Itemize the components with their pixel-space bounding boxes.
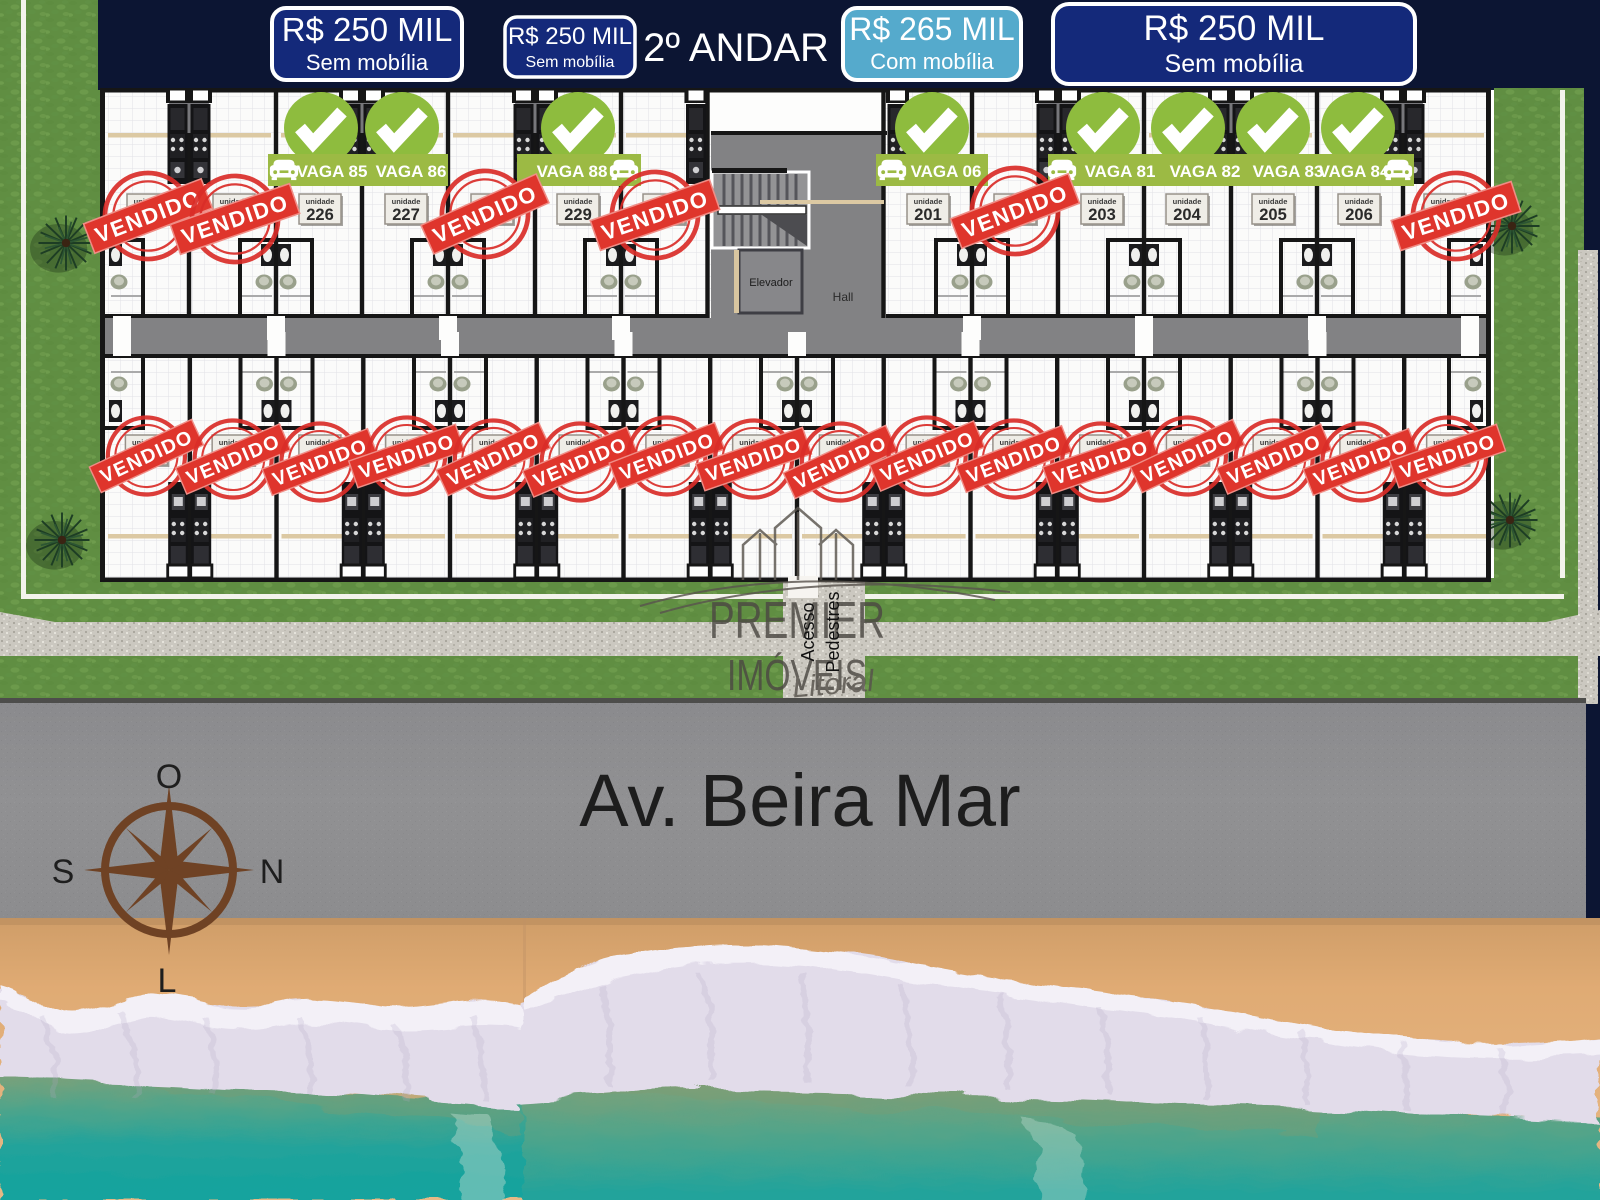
svg-text:VAGA 82: VAGA 82 — [1170, 162, 1241, 181]
svg-text:2º ANDAR: 2º ANDAR — [643, 26, 829, 70]
svg-text:unidade: unidade — [914, 197, 943, 206]
svg-text:Pedestres: Pedestres — [823, 591, 843, 672]
svg-text:VAGA 88: VAGA 88 — [537, 162, 608, 181]
svg-text:unidade: unidade — [564, 197, 593, 206]
svg-text:R$ 265 MIL: R$ 265 MIL — [849, 11, 1014, 47]
svg-text:unidade: unidade — [392, 197, 421, 206]
svg-text:VAGA 81: VAGA 81 — [1085, 162, 1156, 181]
svg-text:VAGA 84: VAGA 84 — [1319, 162, 1390, 181]
svg-text:204: 204 — [1173, 206, 1201, 224]
svg-text:205: 205 — [1259, 206, 1287, 224]
svg-text:227: 227 — [392, 206, 420, 224]
svg-text:R$ 250 MIL: R$ 250 MIL — [508, 23, 632, 50]
svg-text:Sem mobília: Sem mobília — [526, 54, 615, 71]
svg-text:201: 201 — [914, 206, 942, 224]
svg-text:Acesso: Acesso — [798, 602, 818, 661]
svg-text:229: 229 — [564, 206, 592, 224]
svg-text:Sem mobília: Sem mobília — [306, 50, 429, 75]
svg-text:206: 206 — [1345, 206, 1373, 224]
svg-text:Av. Beira Mar: Av. Beira Mar — [579, 759, 1020, 842]
svg-text:unidade: unidade — [1173, 197, 1202, 206]
svg-text:R$ 250 MIL: R$ 250 MIL — [1144, 9, 1325, 48]
svg-text:VAGA 86: VAGA 86 — [376, 162, 447, 181]
svg-text:N: N — [260, 853, 285, 891]
svg-text:O: O — [156, 758, 182, 796]
svg-text:VAGA 06: VAGA 06 — [911, 162, 982, 181]
svg-text:VAGA 85: VAGA 85 — [297, 162, 368, 181]
svg-text:VAGA 83: VAGA 83 — [1253, 162, 1324, 181]
svg-text:unidade: unidade — [1345, 197, 1374, 206]
svg-text:Elevador: Elevador — [749, 277, 793, 289]
svg-text:226: 226 — [306, 206, 334, 224]
svg-text:Hall: Hall — [833, 290, 854, 304]
svg-text:PREMIER: PREMIER — [709, 592, 885, 650]
svg-text:unidade: unidade — [1088, 197, 1117, 206]
svg-text:Sem mobília: Sem mobília — [1165, 50, 1304, 78]
svg-text:unidade: unidade — [306, 197, 335, 206]
svg-text:203: 203 — [1088, 206, 1116, 224]
svg-text:S: S — [52, 853, 75, 891]
svg-text:R$ 250 MIL: R$ 250 MIL — [282, 11, 453, 48]
svg-text:Com mobília: Com mobília — [870, 49, 994, 74]
svg-text:unidade: unidade — [1259, 197, 1288, 206]
svg-text:L: L — [158, 962, 177, 1000]
